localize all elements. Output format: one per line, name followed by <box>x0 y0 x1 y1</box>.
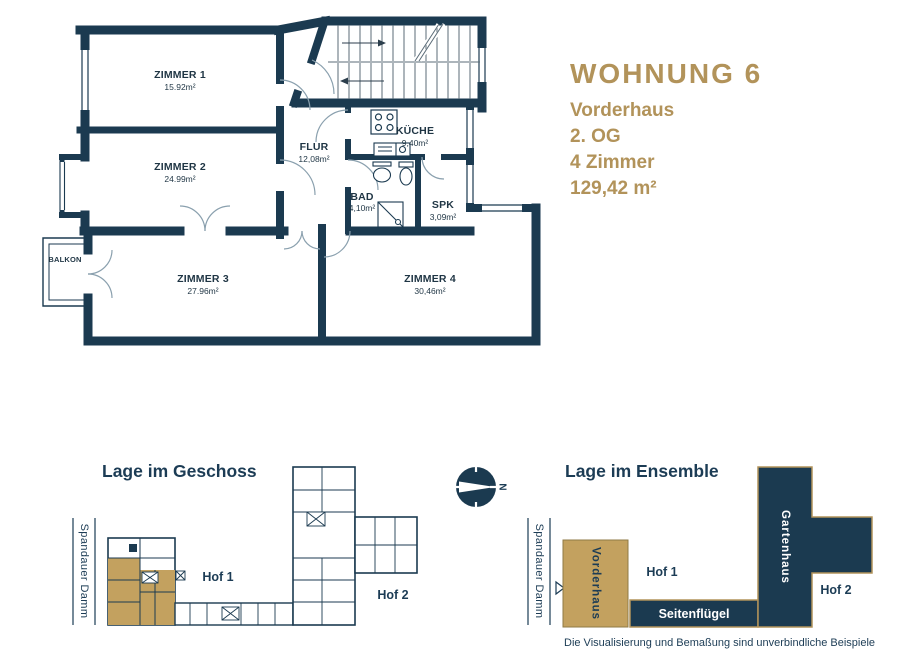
floorplan-page: ZIMMER 1 15.92m² ZIMMER 2 24.99m² ZIMMER… <box>0 0 901 661</box>
room-area-zimmer3: 27.96m² <box>187 286 218 296</box>
staircase <box>328 24 480 99</box>
room-area-flur: 12,08m² <box>298 154 329 164</box>
kitchen-stove-icon <box>371 110 397 134</box>
ensemble-street-label: Spandauer Damm <box>533 524 545 619</box>
ensemble-street: Spandauer Damm <box>528 518 550 625</box>
room-label-zimmer1: ZIMMER 1 <box>154 69 206 81</box>
compass: N <box>450 462 510 514</box>
apartment-floor: 2. OG <box>570 124 762 150</box>
room-label-bad: BAD <box>350 191 374 203</box>
room-area-bad: 4,10m² <box>349 203 376 213</box>
ensemble-hof2-label: Hof 2 <box>820 583 851 597</box>
apartment-title: WOHNUNG 6 <box>570 58 762 90</box>
apartment-building: Vorderhaus <box>570 98 762 124</box>
room-label-zimmer4: ZIMMER 4 <box>404 273 456 285</box>
room-area-zimmer2: 24.99m² <box>164 174 195 184</box>
room-area-spk: 3,09m² <box>430 212 457 222</box>
geschoss-street-label: Spandauer Damm <box>78 524 90 619</box>
room-area-kueche: 9,40m² <box>402 138 429 148</box>
room-label-zimmer2: ZIMMER 2 <box>154 161 206 173</box>
room-label-zimmer3: ZIMMER 3 <box>177 273 229 285</box>
geschoss-seitenfluegel <box>175 603 293 625</box>
room-label-spk: SPK <box>432 199 454 211</box>
balcony-outline <box>43 238 88 306</box>
door-arcs <box>88 60 444 298</box>
apartment-area: 129,42 m² <box>570 176 762 202</box>
room-label-kueche: KÜCHE <box>396 124 434 137</box>
compass-north-label: N <box>496 483 507 490</box>
ensemble-diagram: Spandauer Damm Vorderhaus Seitenflügel G… <box>520 455 901 661</box>
ensemble-seitenfluegel-label: Seitenflügel <box>659 607 730 621</box>
washbasin-icon <box>373 162 391 182</box>
ensemble-gartenhaus-label: Gartenhaus <box>779 510 791 584</box>
geschoss-siteplan: Spandauer Damm <box>60 460 440 645</box>
shower-icon <box>378 202 403 227</box>
ensemble-hof1-label: Hof 1 <box>646 565 677 579</box>
geschoss-vorderhaus <box>108 538 185 625</box>
room-label-flur: FLUR <box>300 141 329 153</box>
apartment-info: WOHNUNG 6 Vorderhaus 2. OG 4 Zimmer 129,… <box>570 58 762 202</box>
room-area-zimmer4: 30,46m² <box>414 286 445 296</box>
disclaimer-text: Die Visualisierung und Bemaßung sind unv… <box>564 637 875 649</box>
ensemble-gartenhaus-block <box>758 467 872 627</box>
room-label-balkon: BALKON <box>48 255 81 264</box>
apartment-roomcount: 4 Zimmer <box>570 150 762 176</box>
apartment-floorplan: ZIMMER 1 15.92m² ZIMMER 2 24.99m² ZIMMER… <box>30 10 550 350</box>
toilet-icon <box>399 162 413 185</box>
geschoss-hof2-label: Hof 2 <box>377 588 408 602</box>
geschoss-hof1-label: Hof 1 <box>202 570 233 584</box>
ensemble-vorderhaus-label: Vorderhaus <box>589 547 601 620</box>
geschoss-street: Spandauer Damm <box>73 518 95 625</box>
room-area-zimmer1: 15.92m² <box>164 82 195 92</box>
